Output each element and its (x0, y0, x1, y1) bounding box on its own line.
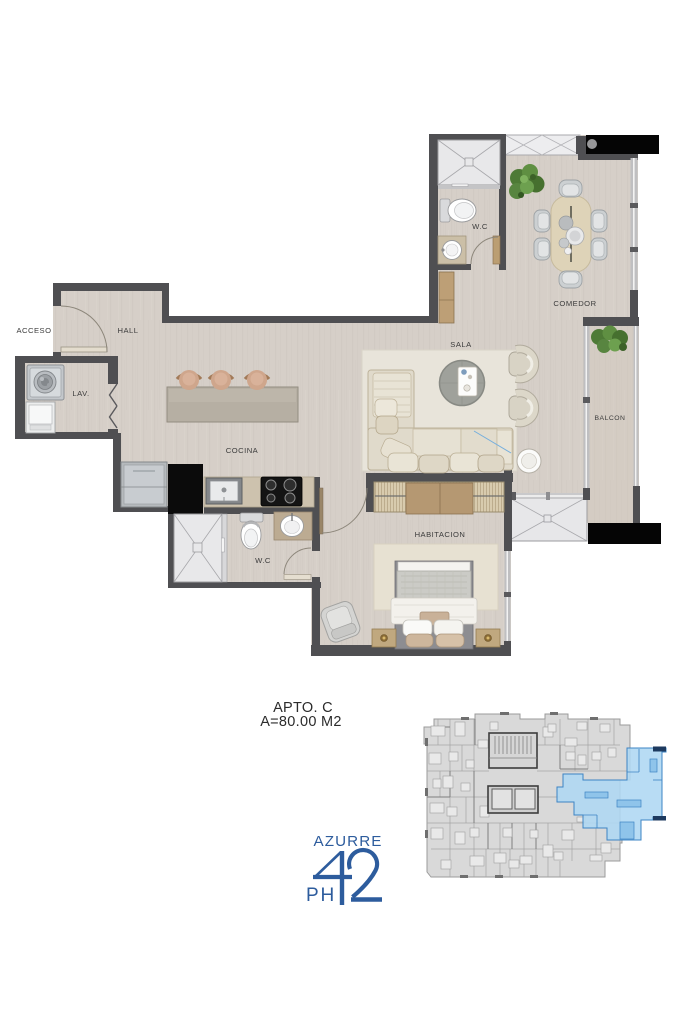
svg-text:AZURRE: AZURRE (313, 833, 382, 850)
svg-text:HALL: HALL (118, 326, 139, 335)
svg-text:A=80.00 M2: A=80.00 M2 (260, 714, 342, 730)
svg-text:HABITACION: HABITACION (415, 530, 466, 539)
svg-text:PH: PH (306, 885, 336, 906)
svg-text:COCINA: COCINA (226, 446, 259, 455)
svg-text:COMEDOR: COMEDOR (553, 299, 596, 308)
svg-text:W.C: W.C (255, 556, 271, 565)
svg-text:BALCON: BALCON (595, 415, 626, 422)
svg-text:SALA: SALA (450, 340, 472, 349)
svg-text:W.C: W.C (472, 222, 488, 231)
svg-text:LAV.: LAV. (72, 389, 89, 398)
svg-text:ACCESO: ACCESO (16, 326, 51, 335)
